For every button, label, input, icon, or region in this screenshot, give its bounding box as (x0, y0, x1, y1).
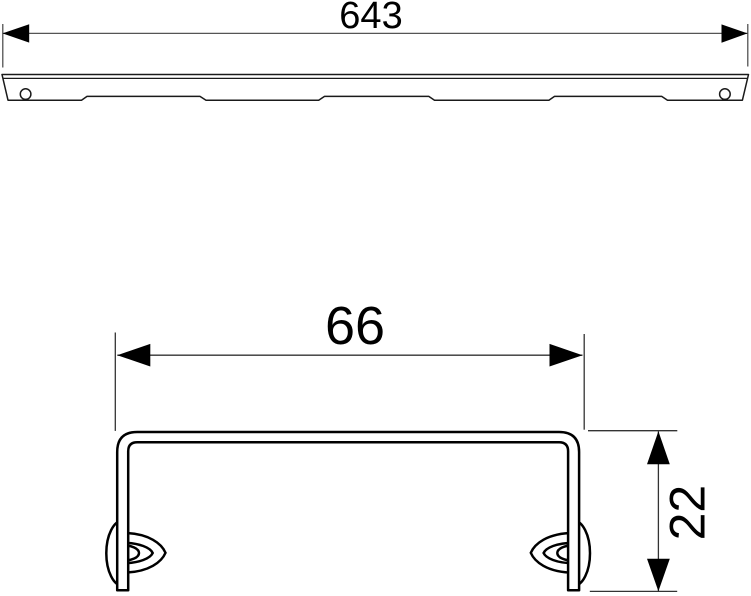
svg-text:66: 66 (325, 296, 385, 356)
svg-text:643: 643 (339, 0, 402, 37)
svg-text:22: 22 (660, 485, 716, 541)
